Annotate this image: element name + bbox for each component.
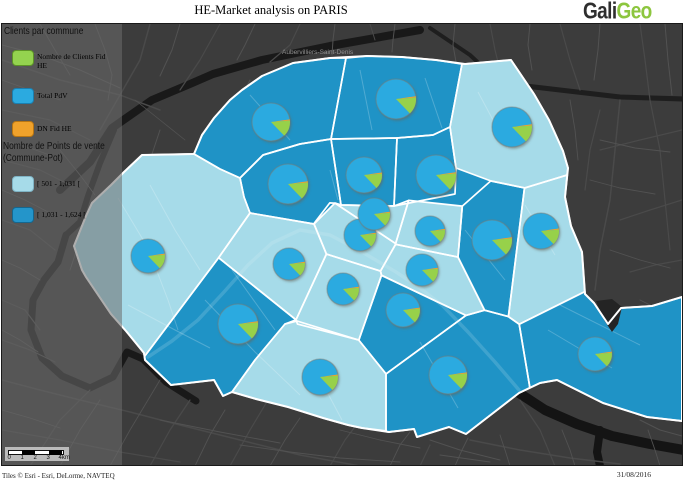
svg-text:Aubervilliers-Saint-Denis: Aubervilliers-Saint-Denis bbox=[282, 49, 354, 56]
